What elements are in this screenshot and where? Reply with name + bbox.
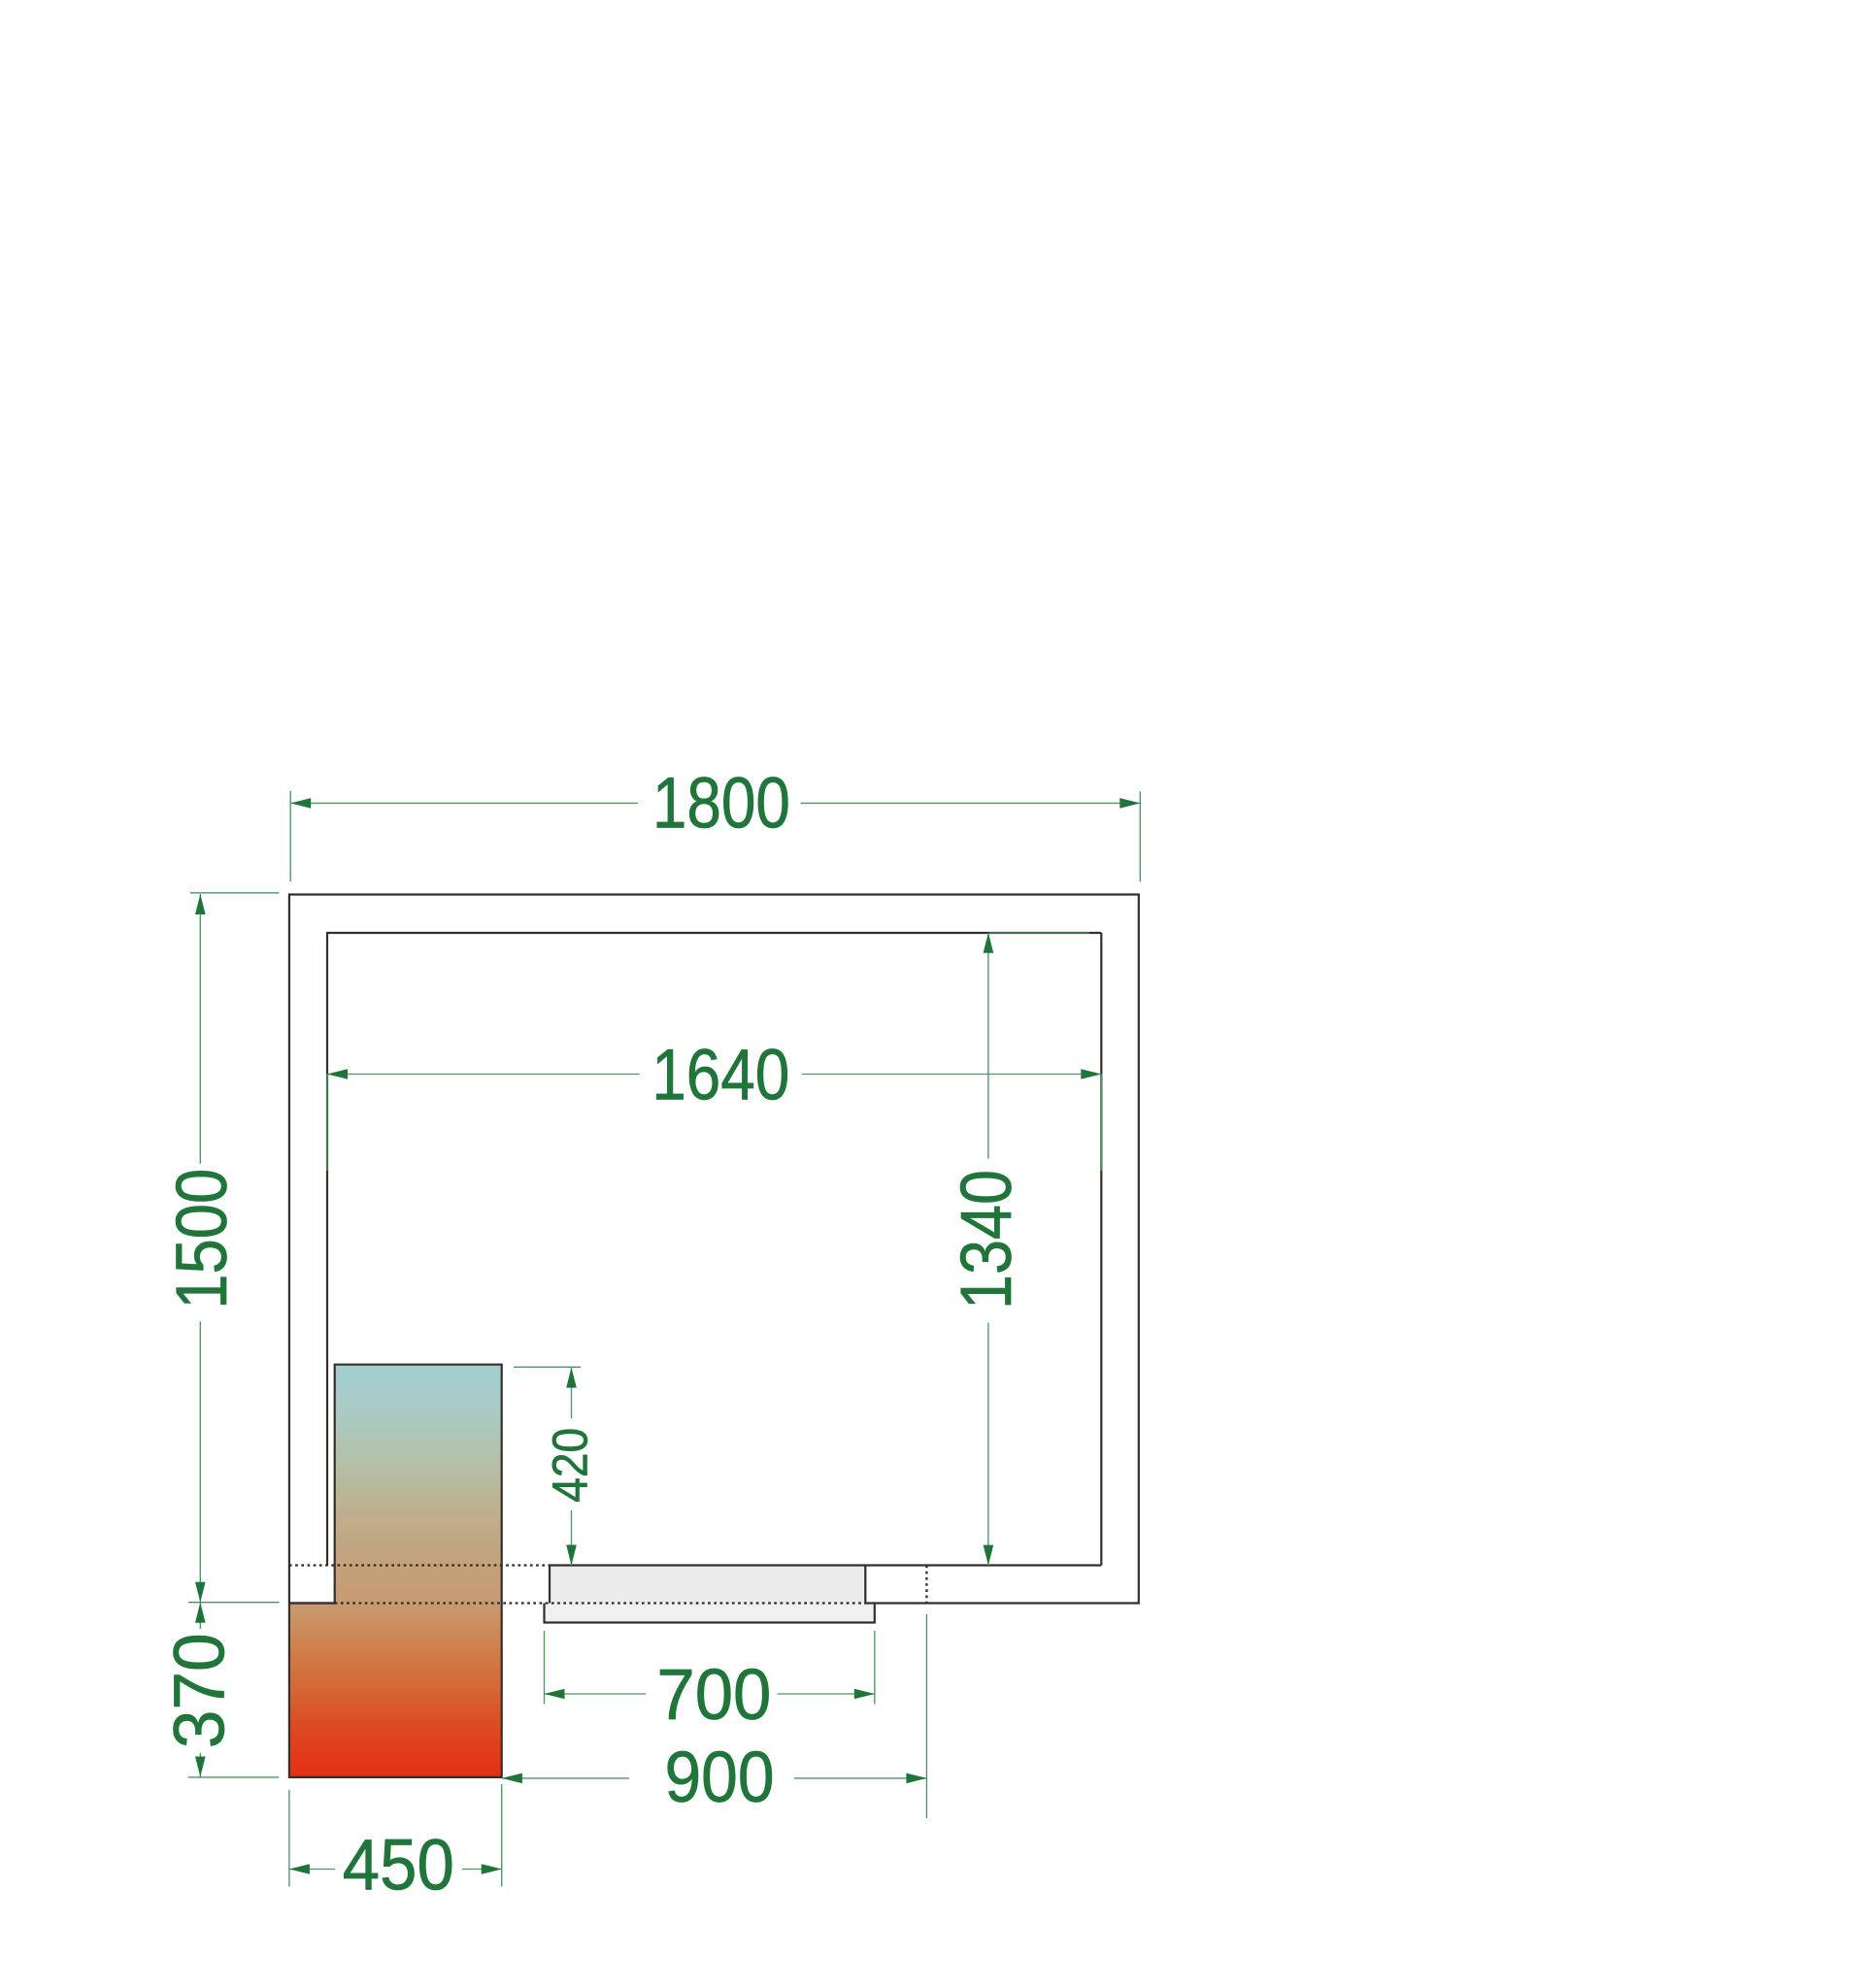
svg-text:1800: 1800 xyxy=(652,763,790,844)
svg-text:900: 900 xyxy=(665,1737,775,1817)
svg-text:370: 370 xyxy=(159,1633,240,1748)
svg-text:1500: 1500 xyxy=(161,1169,242,1309)
svg-text:1640: 1640 xyxy=(652,1034,789,1114)
svg-text:420: 420 xyxy=(542,1428,597,1503)
svg-text:700: 700 xyxy=(656,1654,771,1735)
svg-text:450: 450 xyxy=(343,1825,454,1905)
svg-text:1340: 1340 xyxy=(946,1170,1026,1309)
